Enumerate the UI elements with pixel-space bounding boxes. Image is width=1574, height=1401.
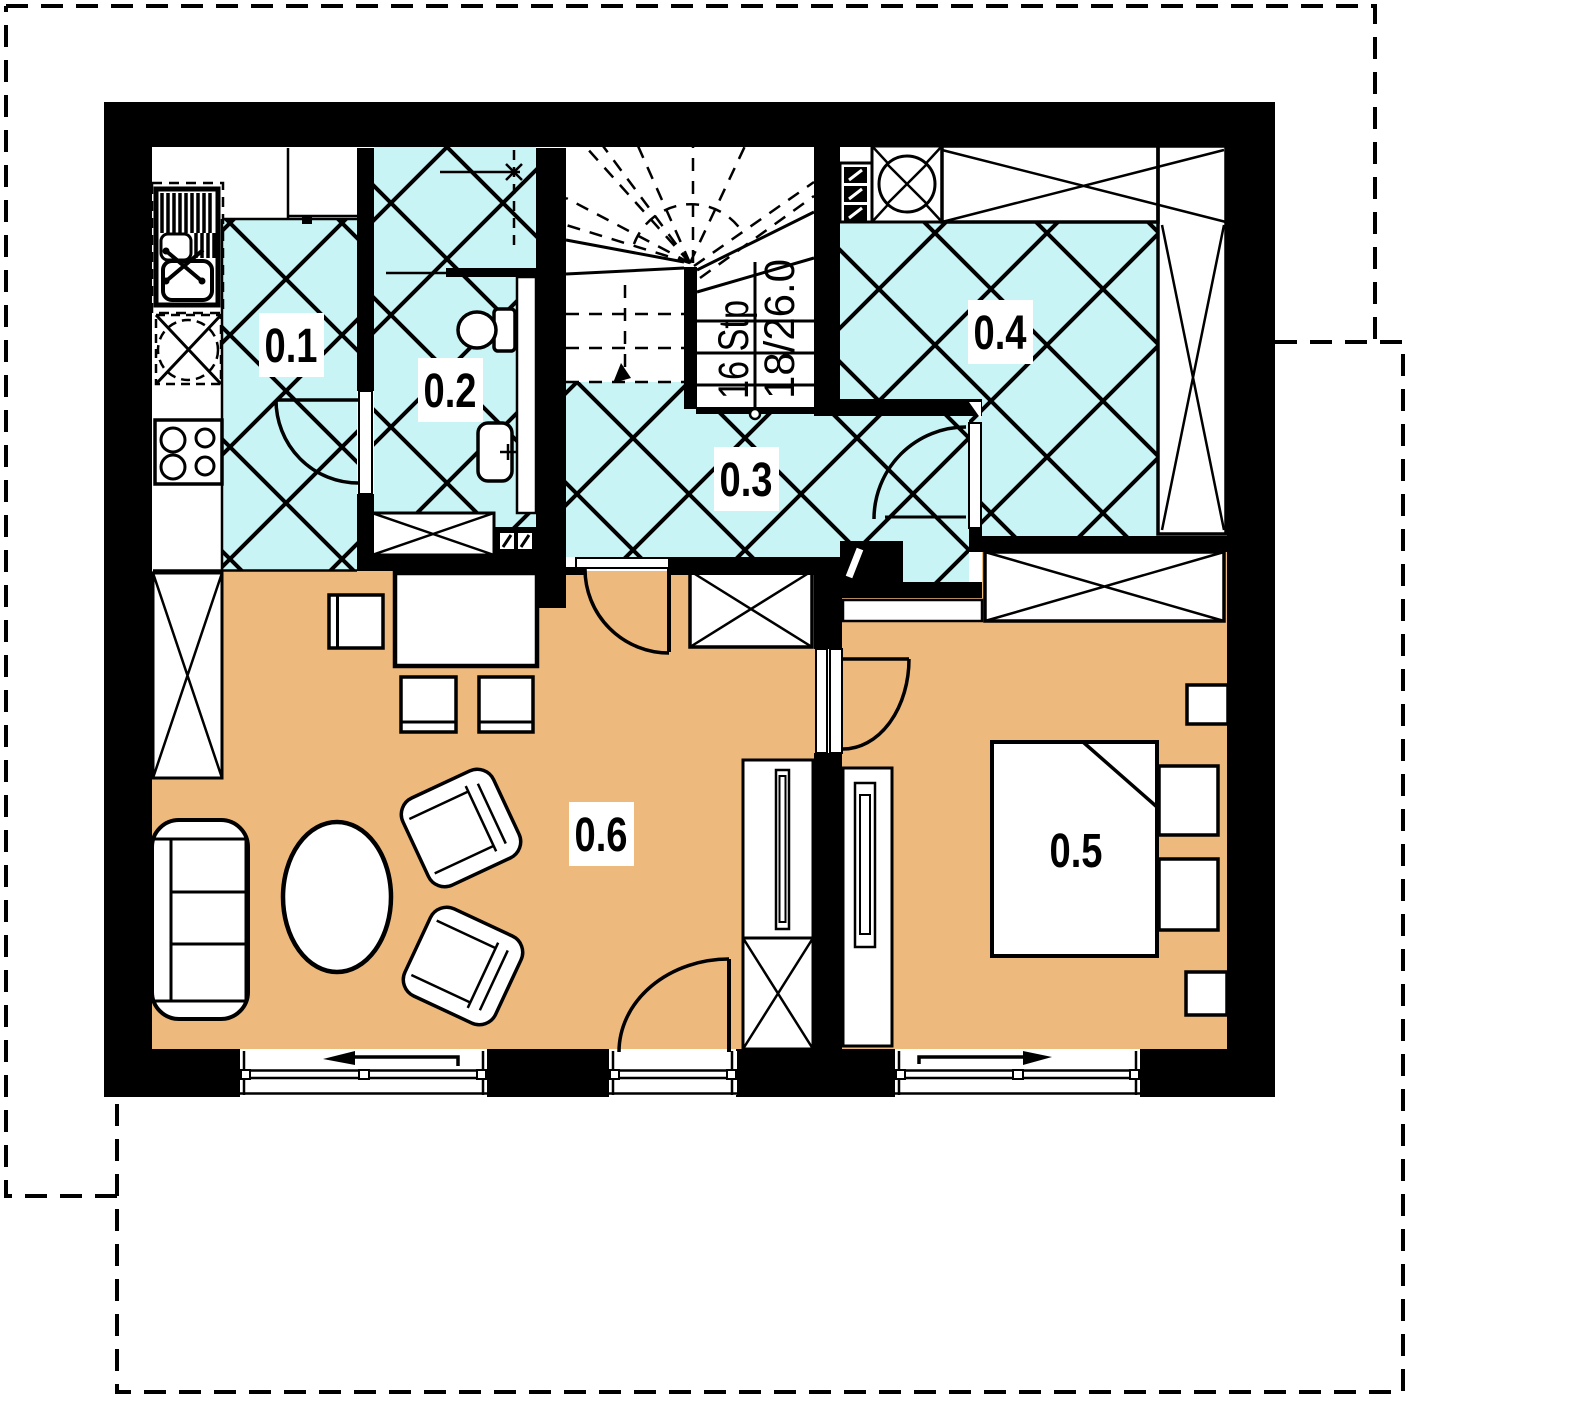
svg-text:0.1: 0.1 bbox=[265, 320, 318, 373]
svg-text:0.6: 0.6 bbox=[575, 809, 628, 862]
svg-text:0.3: 0.3 bbox=[720, 454, 773, 507]
svg-text:18/26.0: 18/26.0 bbox=[756, 259, 804, 399]
svg-text:0.2: 0.2 bbox=[424, 365, 477, 418]
svg-text:0.5: 0.5 bbox=[1050, 825, 1103, 878]
svg-text:0.4: 0.4 bbox=[974, 307, 1027, 360]
svg-text:16 Stp: 16 Stp bbox=[710, 300, 758, 399]
